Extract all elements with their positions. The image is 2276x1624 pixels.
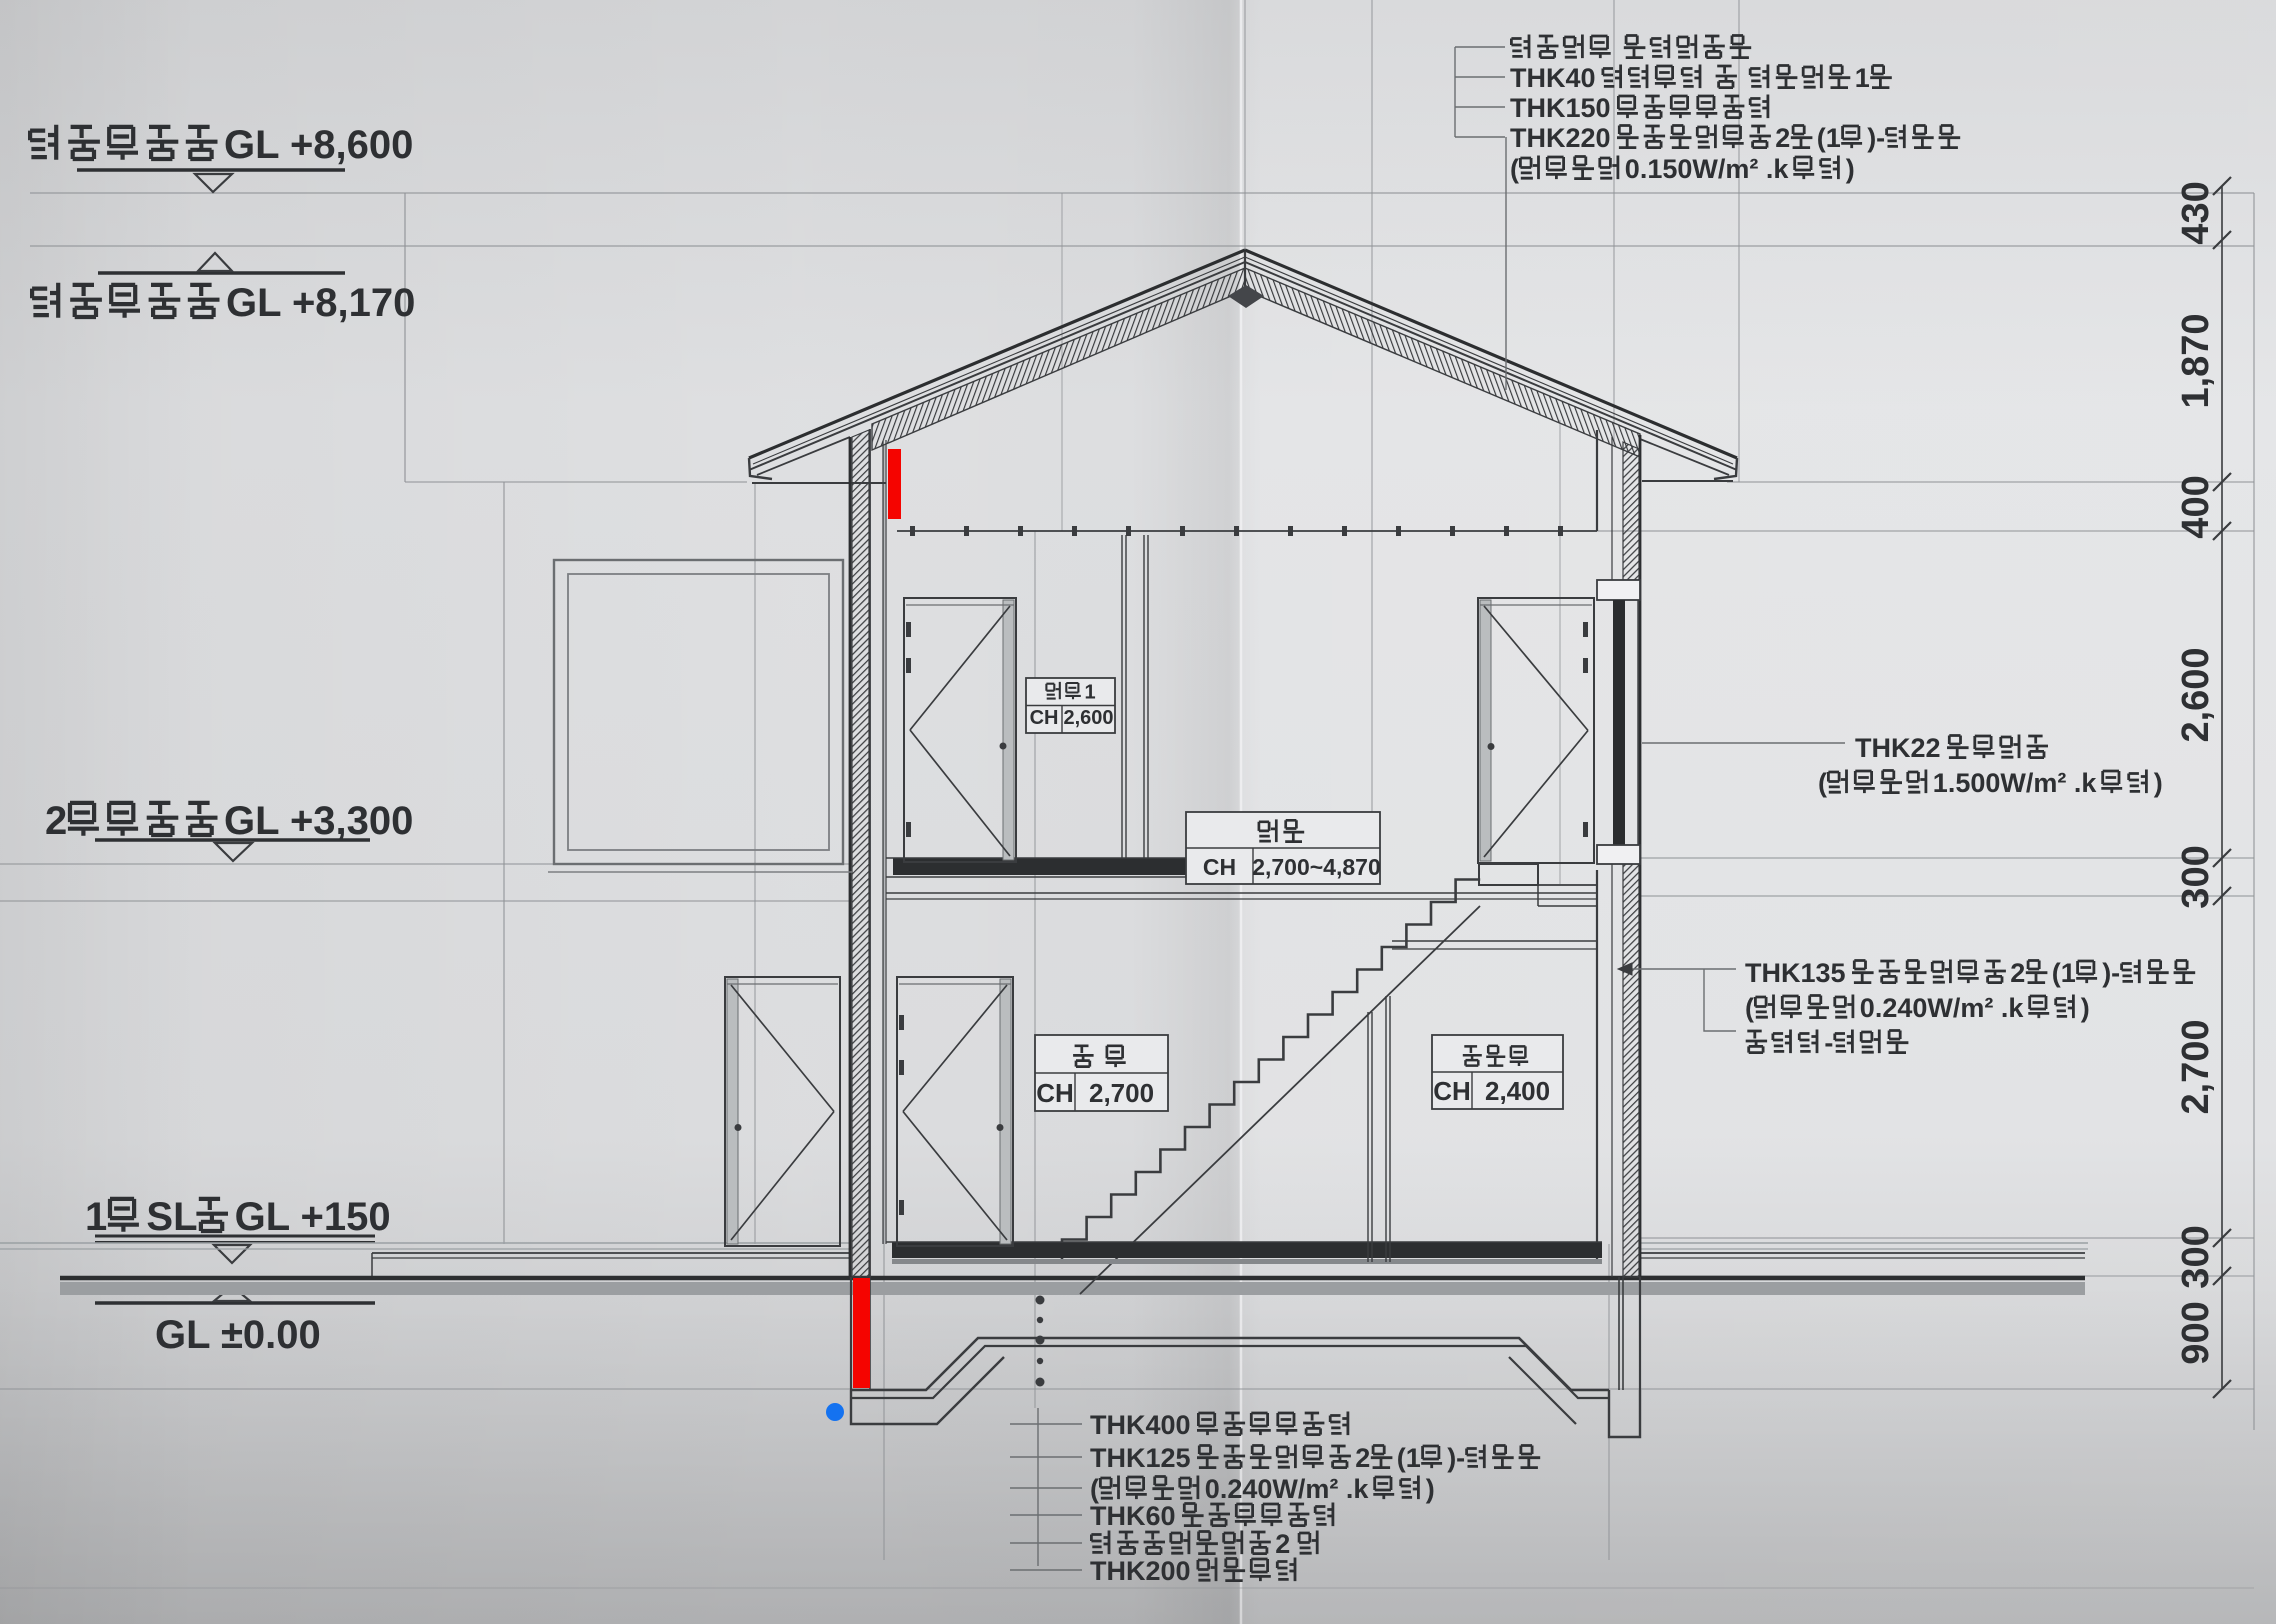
svg-text:0.240W/m² .k: 0.240W/m² .k (1860, 993, 2025, 1023)
svg-text:GL +150: GL +150 (235, 1195, 391, 1239)
svg-text:2,600: 2,600 (1064, 707, 1114, 729)
svg-text:2: 2 (2010, 958, 2025, 988)
svg-text:(1: (1 (2052, 958, 2076, 988)
svg-text:(: ( (1090, 1474, 1099, 1504)
svg-text:2,700: 2,700 (1089, 1078, 1154, 1108)
svg-text:2,700~4,870: 2,700~4,870 (1252, 854, 1381, 880)
svg-text:2,600: 2,600 (2175, 647, 2217, 742)
svg-text:1,870: 1,870 (2175, 313, 2217, 408)
svg-text:400: 400 (2175, 475, 2217, 538)
svg-text:THK220: THK220 (1510, 123, 1611, 153)
svg-text:GL +8,600: GL +8,600 (224, 123, 413, 167)
svg-text:)-: )- (2102, 958, 2120, 988)
svg-text:-: - (1824, 1028, 1833, 1058)
svg-text:(: ( (1510, 154, 1519, 184)
svg-text:2: 2 (1275, 1529, 1290, 1559)
svg-text:2: 2 (45, 799, 67, 843)
svg-text:)-: )- (1867, 123, 1885, 153)
svg-text:1: 1 (1855, 63, 1870, 93)
svg-text:)-: )- (1447, 1443, 1465, 1473)
svg-text:CH: CH (1203, 854, 1236, 880)
svg-text:1.500W/m² .k: 1.500W/m² .k (1933, 768, 2098, 798)
svg-text:430: 430 (2175, 181, 2217, 244)
svg-text:THK22: THK22 (1855, 733, 1941, 763)
svg-text:300: 300 (2175, 845, 2217, 908)
svg-text:THK400: THK400 (1090, 1410, 1191, 1440)
svg-text:): ) (2081, 993, 2090, 1023)
svg-text:THK60: THK60 (1090, 1501, 1176, 1531)
svg-text:(1: (1 (1397, 1443, 1421, 1473)
svg-text:2,700: 2,700 (2175, 1019, 2217, 1114)
svg-text:): ) (1426, 1474, 1435, 1504)
svg-text:900: 900 (2175, 1301, 2217, 1364)
svg-text:1: 1 (1085, 682, 1096, 704)
svg-text:2: 2 (1355, 1443, 1370, 1473)
svg-text:THK40: THK40 (1510, 63, 1596, 93)
svg-text:CH: CH (1433, 1076, 1471, 1106)
svg-text:THK135: THK135 (1745, 958, 1846, 988)
svg-text:GL ±0.00: GL ±0.00 (155, 1313, 321, 1357)
svg-text:): ) (1846, 154, 1855, 184)
svg-text:1: 1 (85, 1195, 107, 1239)
svg-text:(: ( (1818, 768, 1827, 798)
svg-text:300: 300 (2175, 1225, 2217, 1288)
svg-text:CH: CH (1036, 1078, 1074, 1108)
svg-text:(1: (1 (1817, 123, 1841, 153)
svg-text:THK200: THK200 (1090, 1556, 1191, 1586)
svg-text:(: ( (1745, 993, 1754, 1023)
svg-text:GL +8,170: GL +8,170 (226, 281, 415, 325)
svg-text:THK150: THK150 (1510, 93, 1611, 123)
svg-text:CH: CH (1030, 707, 1059, 729)
svg-text:2: 2 (1775, 123, 1790, 153)
svg-text:0.240W/m² .k: 0.240W/m² .k (1205, 1474, 1370, 1504)
svg-text:): ) (2154, 768, 2163, 798)
svg-text:THK125: THK125 (1090, 1443, 1191, 1473)
svg-text:0.150W/m² .k: 0.150W/m² .k (1625, 154, 1790, 184)
svg-text:SL: SL (146, 1195, 197, 1239)
svg-text:GL +3,300: GL +3,300 (224, 799, 413, 843)
svg-text:2,400: 2,400 (1485, 1076, 1550, 1106)
